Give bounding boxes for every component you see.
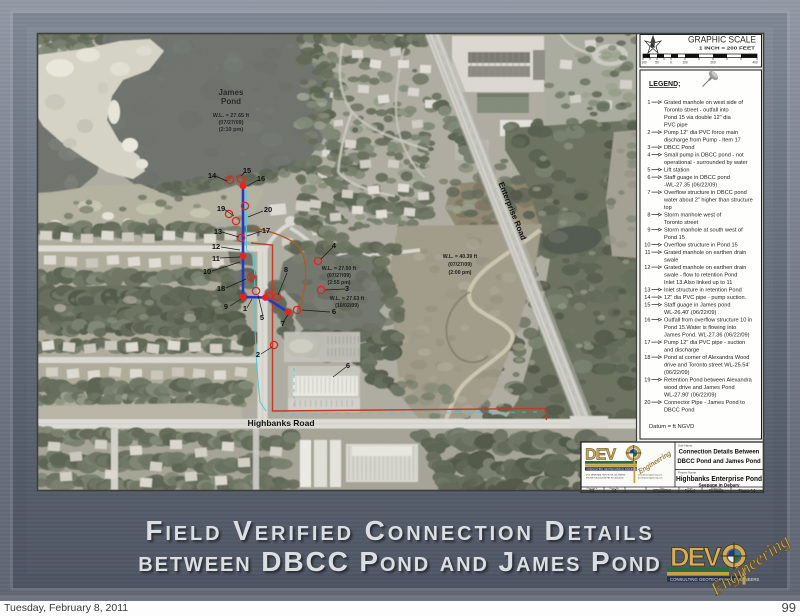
svg-text:Seepage in Debary: Seepage in Debary <box>698 482 740 487</box>
svg-text:Staff guage in DBCC pond: Staff guage in DBCC pond <box>664 175 730 181</box>
svg-text:Pump 12" dia PVC force main: Pump 12" dia PVC force main <box>664 130 738 136</box>
svg-text:WL-26.40' (06/22/09): WL-26.40' (06/22/09) <box>664 310 717 316</box>
svg-text:swale: swale <box>664 258 678 264</box>
svg-text:(07/27/09): (07/27/09) <box>327 273 351 279</box>
svg-text:Grated manhole on west side of: Grated manhole on west side of <box>664 100 743 106</box>
svg-text:11: 11 <box>645 250 651 256</box>
svg-text:14: 14 <box>208 171 217 180</box>
svg-text:Storm manhole west of: Storm manhole west of <box>664 213 722 219</box>
svg-text:10: 10 <box>644 243 650 249</box>
svg-text:operational - surrounded by w: operational - surrounded by water <box>664 160 748 166</box>
svg-text:Highbanks Road: Highbanks Road <box>247 418 314 428</box>
svg-text:Pond 15 via double 12" dia: Pond 15 via double 12" dia <box>664 115 732 121</box>
svg-text:19: 19 <box>217 204 225 213</box>
svg-text:200: 200 <box>710 61 716 65</box>
svg-text:WL-27.90' (06/22/09): WL-27.90' (06/22/09) <box>664 393 717 399</box>
svg-text:Outfall from overflow structur: Outfall from overflow structure 10 in <box>664 318 752 324</box>
svg-text:16: 16 <box>644 318 650 324</box>
svg-text:100: 100 <box>682 61 688 65</box>
svg-text:18: 18 <box>217 284 225 293</box>
svg-text:Staff guage in James pond: Staff guage in James pond <box>664 303 730 309</box>
svg-text:9: 9 <box>224 302 228 311</box>
svg-text:13: 13 <box>214 227 222 236</box>
svg-text:3: 3 <box>647 145 650 151</box>
svg-text:GRAPHIC SCALE: GRAPHIC SCALE <box>688 35 756 45</box>
svg-text:W.L. = 27.65 ft: W.L. = 27.65 ft <box>213 113 250 119</box>
svg-text:James Pond. WL-27.36 (06/22/09: James Pond. WL-27.36 (06/22/09) <box>664 333 750 339</box>
svg-text:Connector Pipe - James Pond to: Connector Pipe - James Pond to <box>664 400 745 406</box>
svg-text:Connection Details Between: Connection Details Between <box>679 450 760 456</box>
svg-text:Toronto street - outfall into: Toronto street - outfall into <box>664 108 729 114</box>
svg-text:wood drive and James Pond: wood drive and James Pond <box>663 385 735 391</box>
svg-text:(06/22/09): (06/22/09) <box>664 370 690 376</box>
svg-text:15: 15 <box>243 166 251 175</box>
svg-text:(10/02/09): (10/02/09) <box>335 303 359 309</box>
svg-text:-WL-27.35 (06/22/09): -WL-27.35 (06/22/09) <box>664 183 717 189</box>
svg-text:7: 7 <box>281 319 285 328</box>
svg-text:LEGEND;: LEGEND; <box>649 81 681 88</box>
svg-text:Inlet structure in retention P: Inlet structure in retention Pond <box>664 288 742 294</box>
svg-text:400: 400 <box>752 61 758 65</box>
svg-text:1 INCH = 200 FEET: 1 INCH = 200 FEET <box>699 46 755 51</box>
svg-text:Pond 15: Pond 15 <box>664 235 685 241</box>
svg-text:(2:10 pm): (2:10 pm) <box>219 127 244 133</box>
svg-text:Overflow structure in Pond 15: Overflow structure in Pond 15 <box>664 243 738 249</box>
svg-text:1: 1 <box>647 100 650 106</box>
svg-text:100: 100 <box>641 61 647 65</box>
svg-text:Toronto street: Toronto street <box>664 220 699 226</box>
svg-text:18: 18 <box>644 355 650 361</box>
svg-text:50: 50 <box>655 61 659 65</box>
svg-text:DBCC Pond and James Pond: DBCC Pond and James Pond <box>677 459 761 465</box>
svg-text:dev@devoengineering.com: dev@devoengineering.com <box>638 477 663 479</box>
svg-text:5: 5 <box>260 313 264 322</box>
svg-text:Storm manhole at south west of: Storm manhole at south west of <box>664 228 743 234</box>
svg-text:20: 20 <box>264 205 272 214</box>
svg-text:Pond: Pond <box>221 97 241 106</box>
svg-text:Pond at corner of Alexandra Wo: Pond at corner of Alexandra Wood <box>664 355 749 361</box>
svg-text:20: 20 <box>644 400 650 406</box>
svg-text:0: 0 <box>670 61 672 65</box>
svg-text:17: 17 <box>262 226 270 235</box>
svg-text:PHONE 813-000-0000 FAX 813-00: PHONE 813-000-0000 FAX 813-000-0000 <box>586 476 624 479</box>
svg-text:(2:00 pm): (2:00 pm) <box>448 270 471 276</box>
svg-text:12" dia PVC pipe - pump suctio: 12" dia PVC pipe - pump suction. <box>664 295 747 301</box>
svg-text:swale - flow to retention Pond: swale - flow to retention Pond <box>664 273 737 279</box>
svg-text:James: James <box>219 88 244 97</box>
svg-text:PVC pipe: PVC pipe <box>664 123 688 129</box>
svg-text:9: 9 <box>647 228 650 234</box>
svg-text:DBCC Pond: DBCC Pond <box>664 408 694 414</box>
svg-text:N: N <box>651 44 656 50</box>
svg-text:10: 10 <box>203 267 211 276</box>
svg-text:17: 17 <box>644 340 650 346</box>
svg-text:(2:55 pm): (2:55 pm) <box>327 280 350 286</box>
svg-text:Pond 15.Water is flowing into: Pond 15.Water is flowing into <box>664 325 736 331</box>
svg-text:W.L. = 27.50 ft: W.L. = 27.50 ft <box>322 266 357 272</box>
svg-text:Retention Pond between Alexand: Retention Pond between Alexandra <box>664 378 753 384</box>
svg-text:Small pump in DBCC pond - not: Small pump in DBCC pond - not <box>664 153 744 159</box>
svg-text:16: 16 <box>257 174 265 183</box>
svg-text:11: 11 <box>212 254 220 263</box>
svg-text:discharge from Pump - Item 17: discharge from Pump - Item 17 <box>664 138 741 144</box>
svg-text:DEV: DEV <box>585 447 617 464</box>
svg-text:drive and Toronto street WL-25: drive and Toronto street WL-25.54' <box>664 363 750 369</box>
svg-text:and discharge: and discharge <box>664 348 699 354</box>
svg-text:6: 6 <box>647 175 650 181</box>
svg-text:W.L. = 27.63 ft: W.L. = 27.63 ft <box>330 296 365 302</box>
svg-text:DBCC Pond: DBCC Pond <box>664 145 694 151</box>
svg-text:8: 8 <box>647 213 650 219</box>
svg-text:CONSULTING GEOTECHNICAL ENGINE: CONSULTING GEOTECHNICAL ENGINEERS <box>587 467 641 471</box>
svg-text:top: top <box>664 205 672 211</box>
svg-text:2: 2 <box>256 350 260 359</box>
svg-text:(07/27/09): (07/27/09) <box>448 262 472 268</box>
svg-text:12: 12 <box>212 242 220 251</box>
svg-text:7: 7 <box>647 190 650 196</box>
svg-text:Grated manhole on earthen drai: Grated manhole on earthen drain <box>664 265 746 271</box>
svg-text:water about 2" higher than str: water about 2" higher than structure <box>663 198 753 204</box>
svg-text:Sub-Name: Sub-Name <box>678 444 693 448</box>
svg-text:14: 14 <box>644 295 650 301</box>
svg-text:Lift station: Lift station <box>664 168 690 174</box>
svg-text:19: 19 <box>644 378 650 384</box>
svg-text:Inlet 13.Also linked up to 11: Inlet 13.Also linked up to 11 <box>664 280 732 286</box>
svg-text:(07/27/09): (07/27/09) <box>218 120 243 126</box>
svg-text:2: 2 <box>647 130 650 136</box>
svg-text:4931 MEMORIAL HWY SUITE 200, T: 4931 MEMORIAL HWY SUITE 200, TAMPA <box>586 474 625 477</box>
svg-text:1: 1 <box>243 304 247 313</box>
svg-text:8: 8 <box>284 265 288 274</box>
svg-text:Grated manhole on earthen drai: Grated manhole on earthen drain <box>664 250 746 256</box>
svg-text:5: 5 <box>647 168 650 174</box>
svg-text:12: 12 <box>644 265 650 271</box>
svg-text:Datum = ft NGVD: Datum = ft NGVD <box>649 424 694 430</box>
svg-text:13: 13 <box>644 288 650 294</box>
svg-text:W.L. = 40.39 ft: W.L. = 40.39 ft <box>443 254 478 260</box>
svg-text:6: 6 <box>346 361 350 370</box>
svg-text:Overflow structure in DBCC pon: Overflow structure in DBCC pond <box>664 190 747 196</box>
svg-text:Pump 12" dia PVC pipe - suctio: Pump 12" dia PVC pipe - suction <box>664 340 745 346</box>
svg-text:15: 15 <box>644 303 650 309</box>
svg-text:4: 4 <box>647 153 650 159</box>
